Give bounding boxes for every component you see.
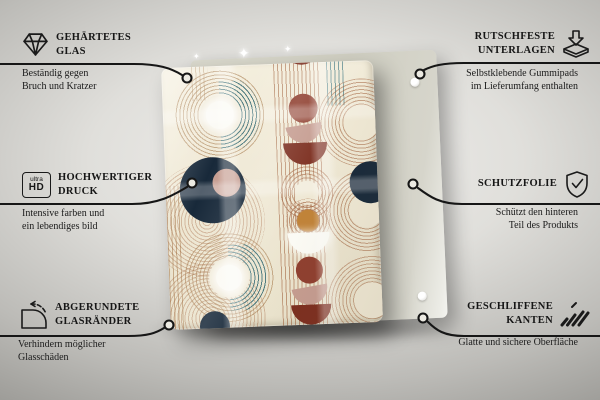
glass-panel	[161, 60, 383, 330]
callout-desc: Glatte und sichere Oberfläche	[428, 337, 590, 350]
callout-header: ABGERUNDETE GLASRÄNDER	[18, 300, 170, 330]
callout-desc: Schützt den hinteren Teil des Produkts	[428, 207, 590, 233]
shield-check-icon	[564, 170, 590, 198]
rounded-corner-icon	[18, 300, 48, 330]
callout-protective-film: SCHUTZFOLIE Schützt den hinteren Teil de…	[428, 170, 590, 233]
callout-title: HOCHWERTIGER DRUCK	[58, 171, 152, 199]
diamond-icon	[22, 32, 49, 57]
callout-header: RUTSCHFESTE UNTERLAGEN	[428, 29, 590, 59]
callout-anti-slip-pads: RUTSCHFESTE UNTERLAGEN Selbstklebende Gu…	[428, 29, 590, 94]
callout-header: GEHÄRTETES GLAS	[22, 31, 174, 59]
callout-title: RUTSCHFESTE UNTERLAGEN	[475, 30, 555, 58]
callout-title: ABGERUNDETE GLASRÄNDER	[55, 301, 139, 329]
product-feature-diagram: ✦ ✦ ✦ GEHÄ	[0, 0, 600, 400]
sparkle-icon: ✦	[238, 46, 250, 63]
callout-title: SCHUTZFOLIE	[478, 177, 557, 191]
ultra-hd-icon: ultra HD	[22, 172, 51, 198]
callout-title: GEHÄRTETES GLAS	[56, 31, 131, 59]
hatch-lines-icon	[560, 300, 590, 327]
callout-quality-print: ultra HD HOCHWERTIGER DRUCK Intensive fa…	[22, 171, 174, 233]
callout-desc: Verhindern möglicher Glasschäden	[18, 339, 170, 365]
callout-desc: Intensive farben und ein lebendiges bild	[22, 208, 174, 234]
callout-desc: Selbstklebende Gummipads im Lieferumfang…	[428, 68, 590, 94]
callout-header: ultra HD HOCHWERTIGER DRUCK	[22, 171, 174, 199]
callout-header: GESCHLIFFENE KANTEN	[428, 300, 590, 328]
ultra-hd-label-bottom: HD	[29, 183, 44, 193]
pads-icon	[562, 29, 590, 59]
callout-tempered-glass: GEHÄRTETES GLAS Beständig gegen Bruch un…	[22, 31, 174, 93]
rubber-pad	[418, 291, 427, 300]
callout-desc: Beständig gegen Bruch und Kratzer	[22, 68, 174, 94]
sparkle-icon: ✦	[193, 52, 200, 61]
callout-polished-edges: GESCHLIFFENE KANTEN Glatte und sichere O…	[428, 300, 590, 350]
rubber-pad	[410, 78, 419, 87]
callout-header: SCHUTZFOLIE	[428, 170, 590, 198]
glass-sheen	[161, 60, 383, 330]
callout-rounded-edges: ABGERUNDETE GLASRÄNDER Verhindern möglic…	[18, 300, 170, 365]
sparkle-icon: ✦	[284, 44, 292, 55]
callout-title: GESCHLIFFENE KANTEN	[467, 300, 553, 328]
